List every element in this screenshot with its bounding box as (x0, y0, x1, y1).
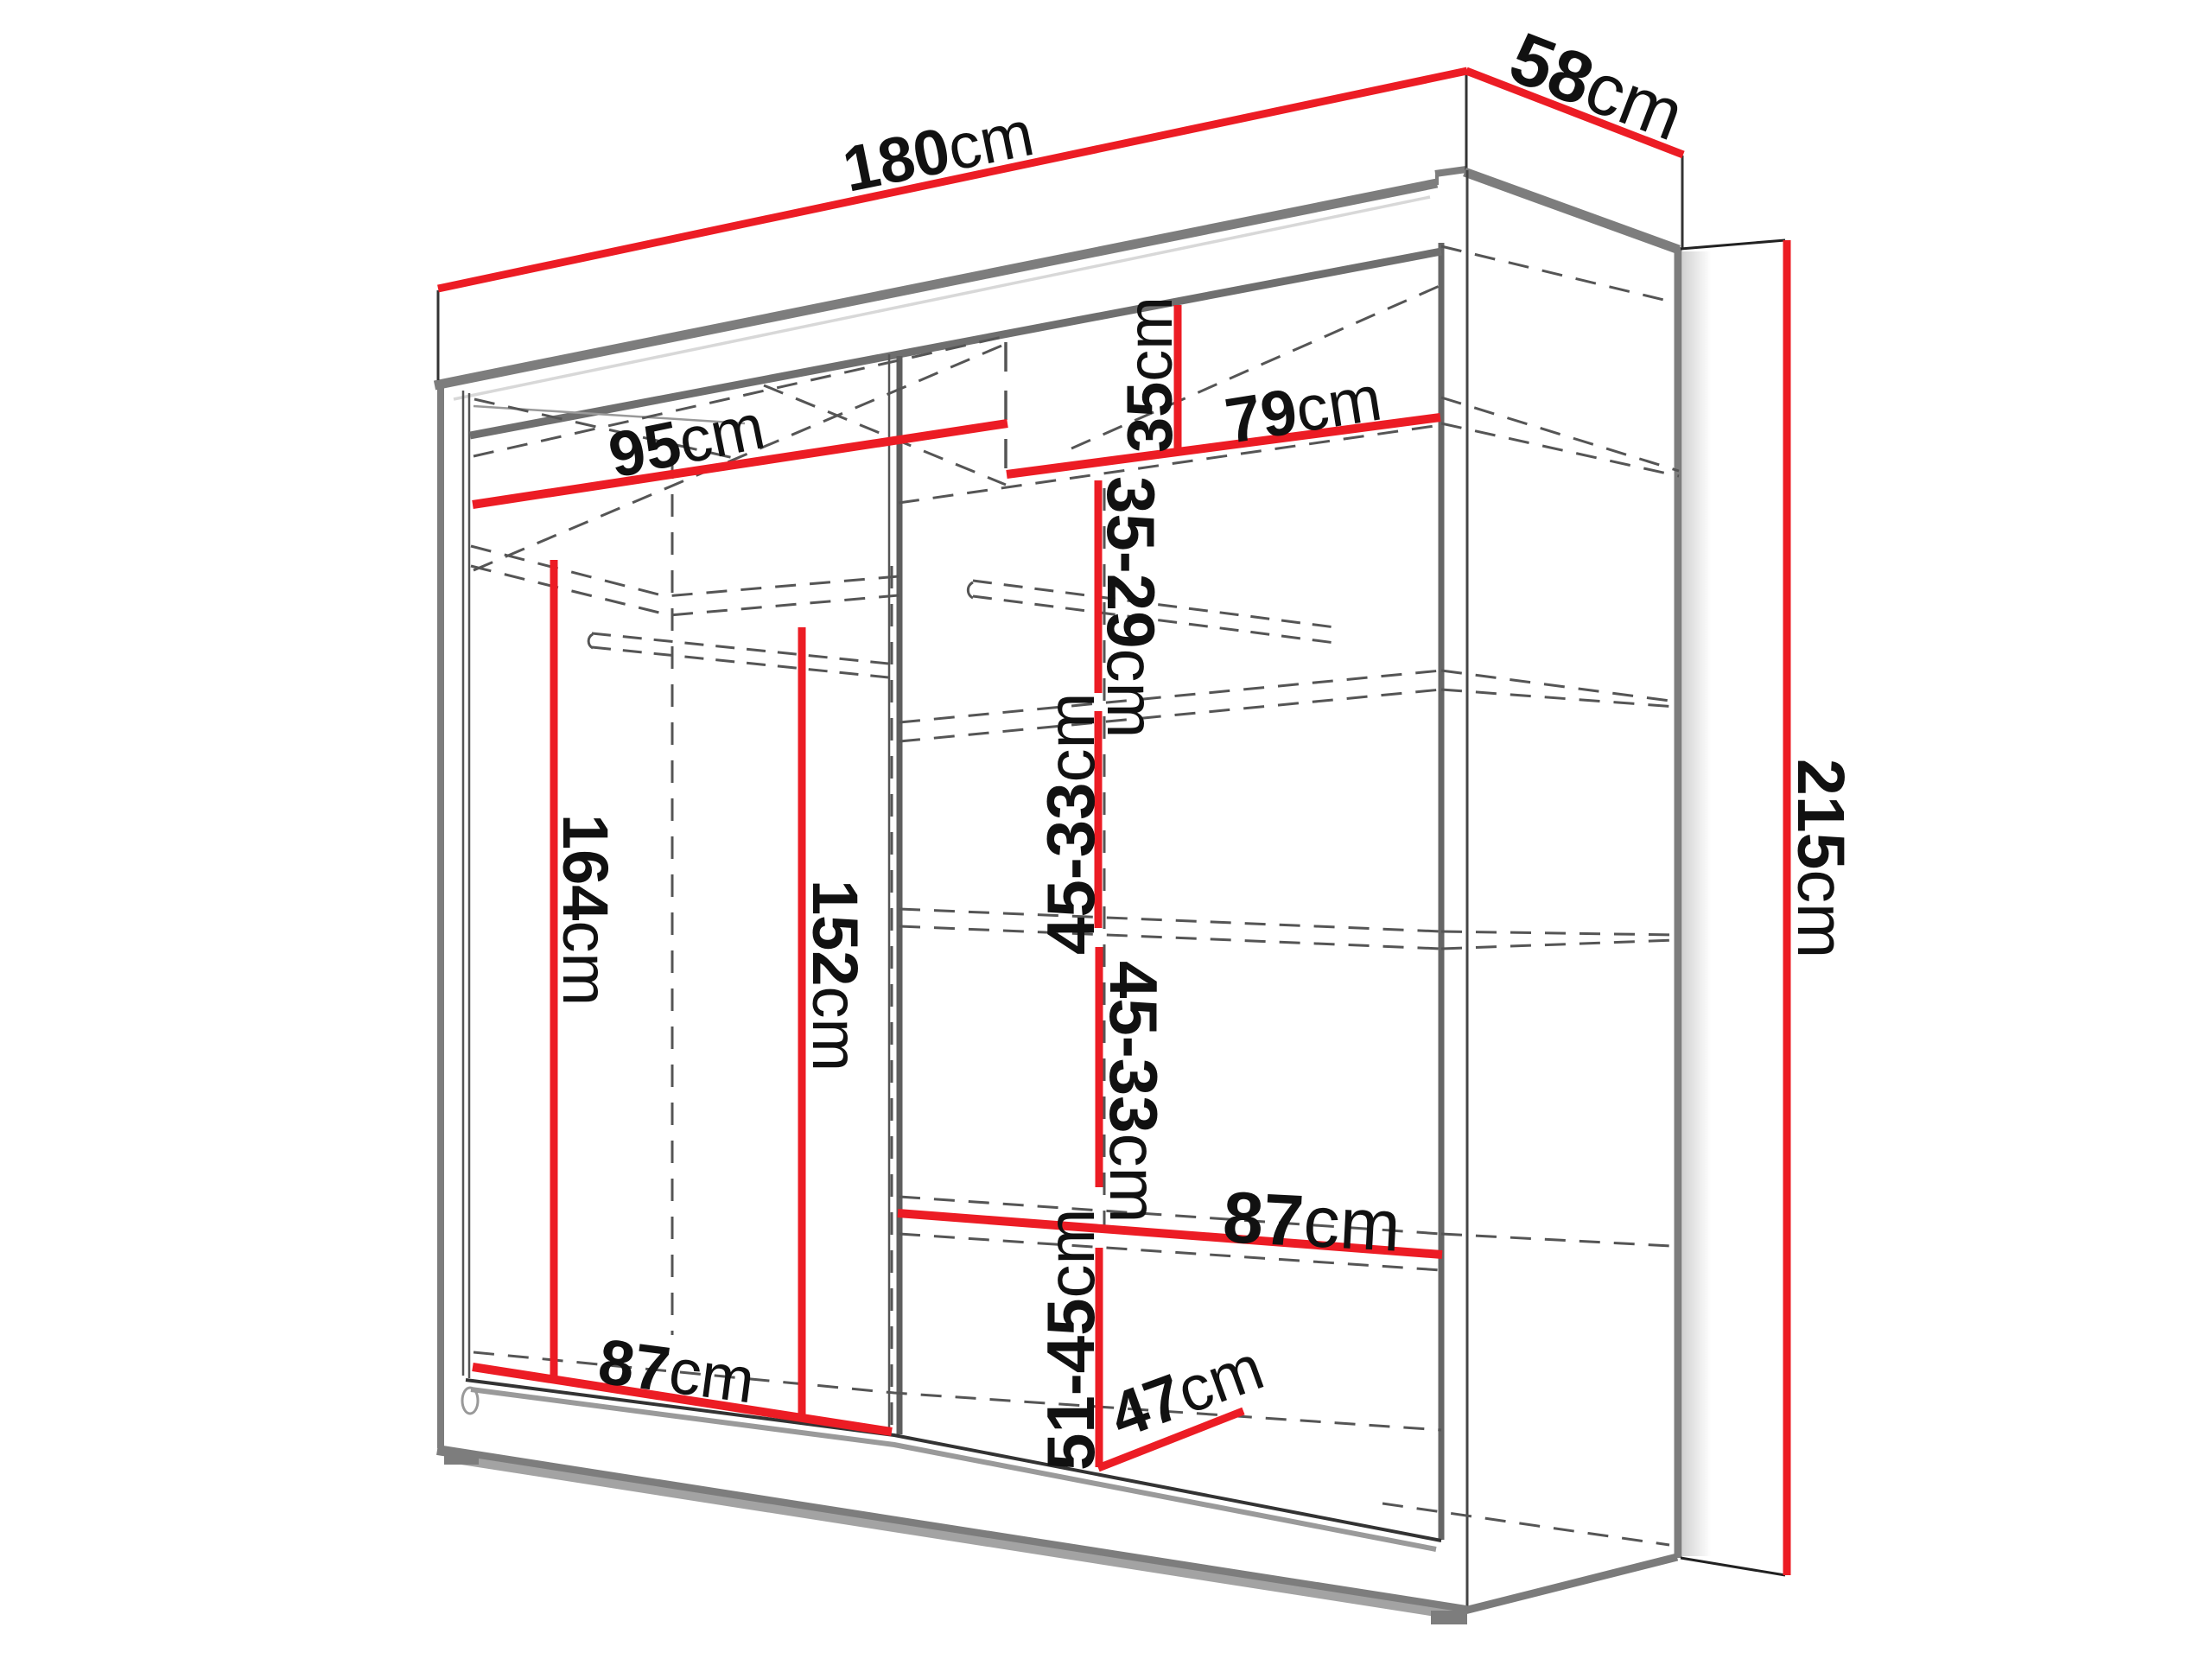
svg-text:45-33cm: 45-33cm (1033, 693, 1109, 955)
svg-text:45-33cm: 45-33cm (1096, 961, 1172, 1223)
svg-text:152cm: 152cm (799, 880, 871, 1071)
svg-text:164cm: 164cm (550, 814, 621, 1006)
svg-text:215cm: 215cm (1783, 759, 1858, 958)
svg-text:35cm: 35cm (1114, 296, 1185, 453)
svg-text:87cm: 87cm (1221, 1176, 1402, 1267)
svg-text:51-45cm: 51-45cm (1033, 1209, 1109, 1471)
